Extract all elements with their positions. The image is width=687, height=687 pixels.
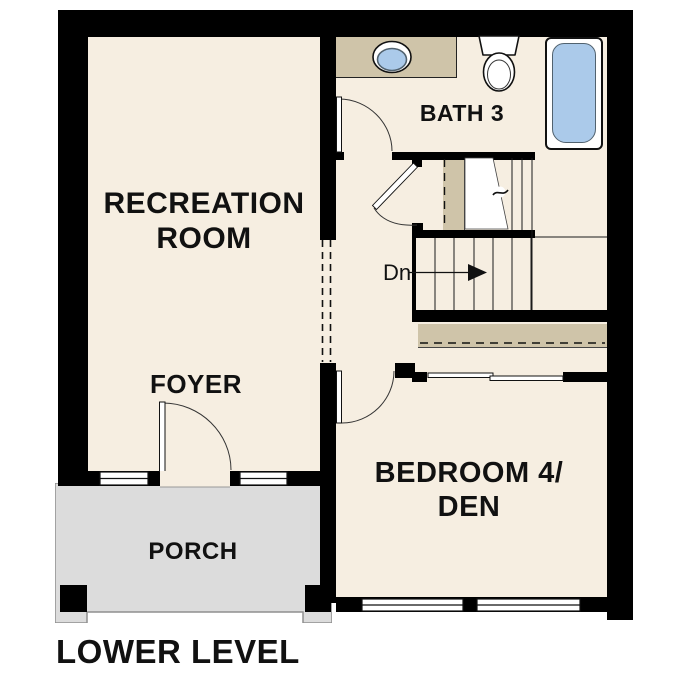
wall-right	[607, 10, 633, 620]
porch-post-right	[305, 585, 331, 612]
wall-stair-stub-top	[412, 158, 422, 167]
wall-bedroom-window-stub-left	[412, 372, 427, 382]
foyer-label: FOYER	[126, 369, 266, 400]
porch-label: PORCH	[133, 538, 253, 566]
wall-top	[58, 10, 633, 37]
bath-counter	[336, 37, 457, 78]
wall-foyer-bottom	[58, 471, 336, 486]
wall-bedroom-bottom	[336, 597, 633, 612]
bedroom4-den-label: BEDROOM 4/ DEN	[349, 456, 589, 524]
stair-landing-strip	[418, 324, 607, 348]
bathtub-symbol	[545, 37, 603, 150]
wall-bedroom-window-stub-right	[563, 372, 607, 382]
plan-title: LOWER LEVEL	[56, 633, 356, 671]
stairs-dn-label: Dn	[382, 260, 412, 286]
porch-post-left	[60, 585, 87, 612]
wall-stair-mid	[412, 230, 535, 238]
wall-stair-left-thin	[412, 238, 416, 310]
floor-plan: RECREATION ROOM FOYER BATH 3 BEDROOM 4/ …	[0, 0, 687, 687]
wall-stair-thick	[412, 310, 607, 322]
wall-bath-door-stub	[336, 152, 344, 160]
bath3-label: BATH 3	[392, 100, 532, 127]
bathtub-basin	[552, 43, 596, 143]
stair-upper-strip	[443, 158, 465, 230]
recreation-room-label: RECREATION ROOM	[84, 186, 324, 256]
